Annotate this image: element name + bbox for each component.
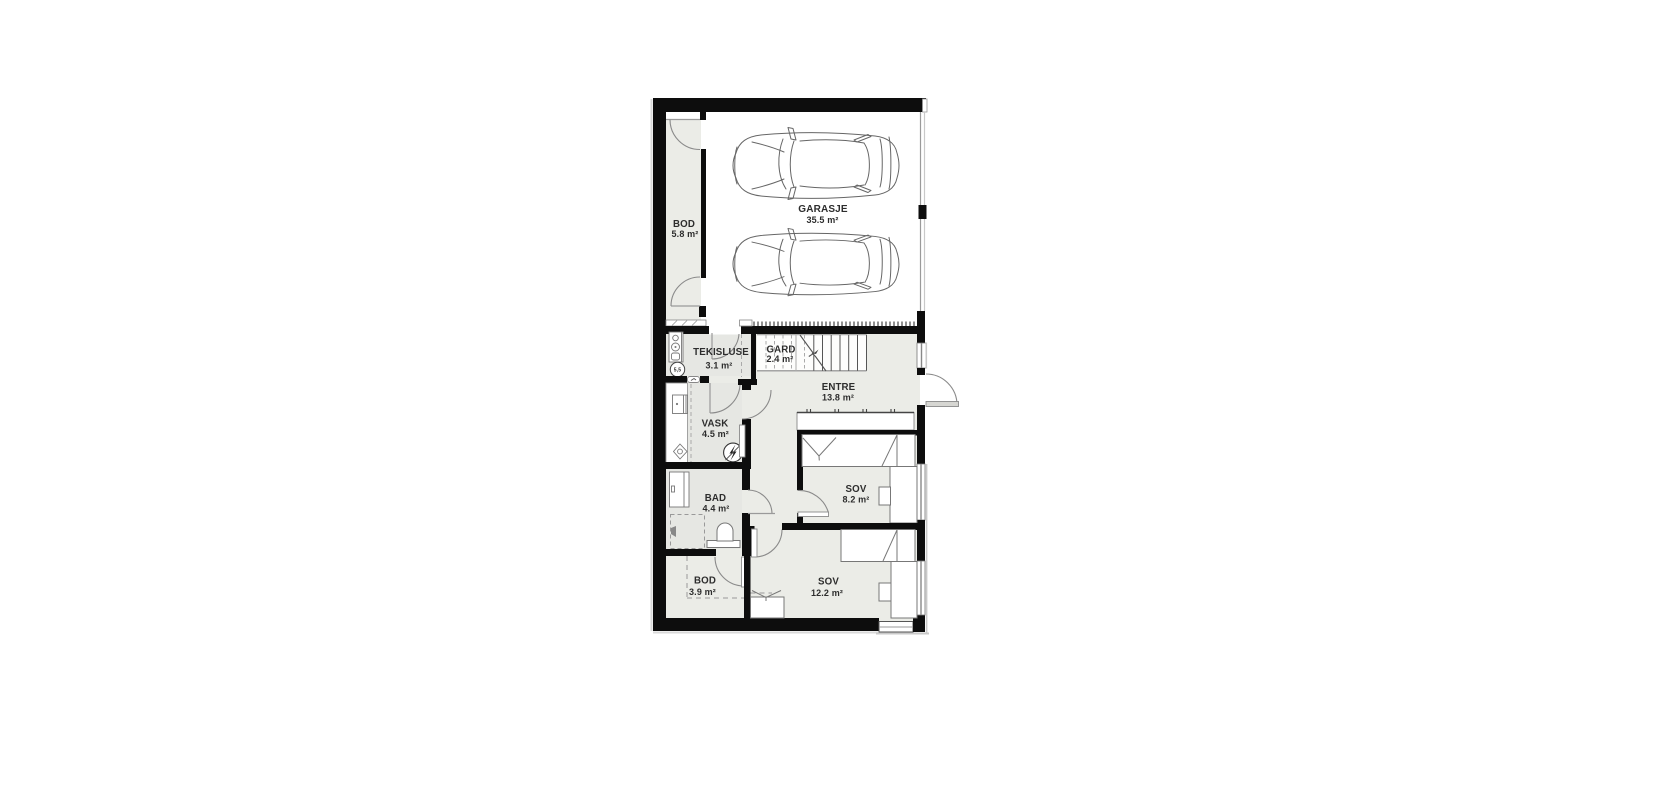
svg-text:SOV: SOV (846, 484, 867, 495)
svg-text:VASK: VASK (702, 419, 729, 430)
svg-text:2.4 m²: 2.4 m² (767, 354, 794, 364)
svg-text:TEKISLUSE: TEKISLUSE (693, 347, 749, 358)
svg-text:GARASJE: GARASJE (798, 204, 848, 215)
svg-text:SOV: SOV (818, 577, 839, 588)
svg-text:35.5 m²: 35.5 m² (806, 215, 838, 225)
svg-text:12.2 m²: 12.2 m² (811, 588, 843, 598)
svg-text:5,5: 5,5 (674, 368, 681, 374)
svg-text:4.4 m²: 4.4 m² (703, 504, 730, 514)
svg-text:13.8 m²: 13.8 m² (822, 393, 854, 403)
svg-text:ENTRE: ENTRE (822, 382, 856, 393)
svg-text:BAD: BAD (705, 493, 726, 504)
svg-text:BOD: BOD (694, 576, 716, 587)
svg-text:4.5 m²: 4.5 m² (702, 429, 729, 439)
svg-text:5.8 m²: 5.8 m² (672, 229, 699, 239)
svg-text:3.1 m²: 3.1 m² (706, 361, 733, 371)
svg-text:8.2 m²: 8.2 m² (843, 495, 870, 505)
svg-text:3.9 m²: 3.9 m² (689, 587, 716, 597)
